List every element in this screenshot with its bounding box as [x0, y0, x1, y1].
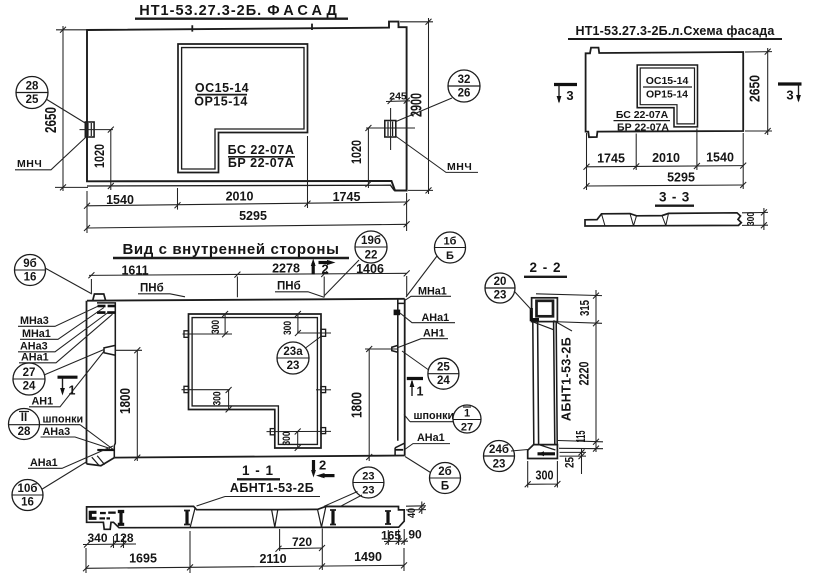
- svg-text:28: 28: [18, 426, 31, 438]
- svg-text:2б: 2б: [438, 466, 452, 478]
- svg-text:2: 2: [322, 262, 329, 277]
- svg-text:НТ1-53.27.3-2Б.л.Схема фасада: НТ1-53.27.3-2Б.л.Схема фасада: [575, 24, 775, 38]
- svg-text:25: 25: [26, 94, 39, 106]
- svg-text:2900: 2900: [409, 93, 426, 117]
- svg-text:1490: 1490: [354, 550, 382, 564]
- svg-text:МНа1: МНа1: [418, 286, 447, 298]
- svg-text:22: 22: [365, 250, 378, 262]
- svg-text:25: 25: [437, 362, 450, 374]
- svg-text:2278: 2278: [272, 262, 300, 276]
- svg-text:2010: 2010: [652, 151, 680, 165]
- svg-text:шпонки: шпонки: [414, 410, 455, 422]
- svg-text:20: 20: [494, 276, 507, 288]
- svg-text:90: 90: [408, 528, 422, 542]
- svg-text:2650: 2650: [747, 75, 764, 102]
- svg-text:1800: 1800: [349, 392, 366, 418]
- svg-text:23: 23: [287, 360, 300, 372]
- svg-text:1: 1: [417, 385, 424, 399]
- svg-text:АБНТ1-53-2Б: АБНТ1-53-2Б: [560, 337, 574, 421]
- svg-text:II: II: [21, 412, 27, 424]
- svg-text:1020: 1020: [91, 144, 107, 168]
- svg-text:300: 300: [212, 392, 224, 406]
- svg-text:1406: 1406: [356, 262, 384, 276]
- svg-text:3: 3: [786, 88, 793, 103]
- svg-text:МНЧ: МНЧ: [17, 158, 42, 170]
- svg-text:23: 23: [493, 459, 506, 471]
- svg-text:1: 1: [464, 408, 470, 420]
- svg-text:5295: 5295: [239, 209, 267, 223]
- svg-text:БР 22-07А: БР 22-07А: [617, 122, 669, 134]
- svg-text:МНа1: МНа1: [22, 328, 51, 340]
- svg-text:БР 22-07А: БР 22-07А: [228, 156, 294, 170]
- svg-text:ПНб: ПНб: [277, 281, 301, 293]
- svg-text:АНа1: АНа1: [417, 432, 445, 444]
- svg-text:25: 25: [565, 456, 577, 468]
- svg-text:24: 24: [437, 375, 450, 387]
- svg-text:МНа3: МНа3: [20, 315, 49, 327]
- svg-text:26: 26: [458, 88, 471, 100]
- svg-text:2110: 2110: [259, 552, 286, 566]
- svg-text:АБНТ1-53-2Б: АБНТ1-53-2Б: [230, 481, 314, 495]
- svg-text:300: 300: [536, 468, 554, 483]
- svg-text:ОС15-14: ОС15-14: [646, 75, 689, 87]
- svg-text:Б: Б: [441, 481, 449, 493]
- svg-text:Вид с внутренней стороны: Вид с внутренней стороны: [122, 241, 339, 258]
- svg-text:27: 27: [461, 422, 473, 434]
- svg-text:23: 23: [494, 290, 507, 302]
- svg-text:шпонки: шпонки: [43, 414, 84, 426]
- svg-text:32: 32: [458, 74, 471, 86]
- svg-text:28: 28: [26, 81, 39, 93]
- svg-text:2 - 2: 2 - 2: [529, 260, 561, 275]
- svg-text:1800: 1800: [117, 388, 134, 414]
- svg-text:340: 340: [87, 531, 107, 545]
- svg-text:115: 115: [574, 430, 588, 442]
- svg-text:ОР15-14: ОР15-14: [194, 95, 248, 109]
- svg-text:2650: 2650: [43, 107, 60, 133]
- svg-text:НТ1-53.27.3-2Б. ФАСАД: НТ1-53.27.3-2Б. ФАСАД: [139, 3, 341, 19]
- svg-text:БС 22-07А: БС 22-07А: [228, 143, 295, 157]
- svg-text:16: 16: [21, 497, 34, 509]
- svg-text:ПНб: ПНб: [140, 283, 164, 295]
- svg-text:9б: 9б: [23, 258, 37, 270]
- svg-text:1б: 1б: [444, 236, 457, 248]
- svg-text:16: 16: [24, 272, 37, 284]
- svg-text:ОР15-14: ОР15-14: [646, 89, 688, 101]
- svg-text:3: 3: [566, 88, 573, 103]
- svg-text:24: 24: [23, 381, 36, 393]
- svg-text:2220: 2220: [577, 362, 592, 386]
- svg-text:АНа1: АНа1: [30, 457, 58, 469]
- svg-text:1611: 1611: [121, 263, 148, 277]
- svg-text:1745: 1745: [597, 152, 625, 166]
- svg-text:1745: 1745: [333, 190, 361, 204]
- svg-text:10б: 10б: [18, 483, 38, 495]
- svg-text:27: 27: [23, 367, 36, 379]
- svg-text:2: 2: [319, 458, 326, 473]
- svg-text:1695: 1695: [129, 552, 157, 566]
- svg-text:1540: 1540: [706, 151, 734, 165]
- svg-text:40: 40: [406, 508, 418, 518]
- svg-text:128: 128: [113, 531, 133, 545]
- svg-text:ОС15-14: ОС15-14: [195, 81, 249, 95]
- svg-text:АНа3: АНа3: [43, 426, 71, 438]
- svg-text:1 - 1: 1 - 1: [242, 463, 274, 478]
- svg-text:Б: Б: [446, 250, 454, 262]
- svg-text:23: 23: [362, 485, 374, 497]
- svg-text:300: 300: [281, 432, 293, 446]
- svg-text:1540: 1540: [106, 193, 134, 207]
- svg-text:300: 300: [282, 321, 294, 335]
- svg-text:3 - 3: 3 - 3: [659, 190, 690, 205]
- svg-text:1020: 1020: [348, 140, 364, 164]
- svg-text:АН1: АН1: [32, 396, 54, 408]
- svg-text:МНЧ: МНЧ: [447, 161, 472, 173]
- svg-text:300: 300: [745, 212, 757, 226]
- svg-text:2010: 2010: [226, 189, 254, 203]
- svg-text:165: 165: [381, 529, 401, 543]
- svg-text:АНа1: АНа1: [21, 352, 49, 364]
- svg-text:19б: 19б: [361, 235, 381, 247]
- svg-text:5295: 5295: [667, 171, 695, 185]
- svg-text:720: 720: [292, 535, 312, 549]
- svg-text:23: 23: [362, 471, 374, 483]
- svg-text:23а: 23а: [283, 346, 303, 358]
- svg-text:АН1: АН1: [423, 328, 445, 340]
- svg-text:БС 22-07А: БС 22-07А: [616, 109, 669, 121]
- svg-text:315: 315: [578, 300, 592, 316]
- svg-text:300: 300: [210, 320, 222, 334]
- svg-text:24б: 24б: [489, 444, 509, 456]
